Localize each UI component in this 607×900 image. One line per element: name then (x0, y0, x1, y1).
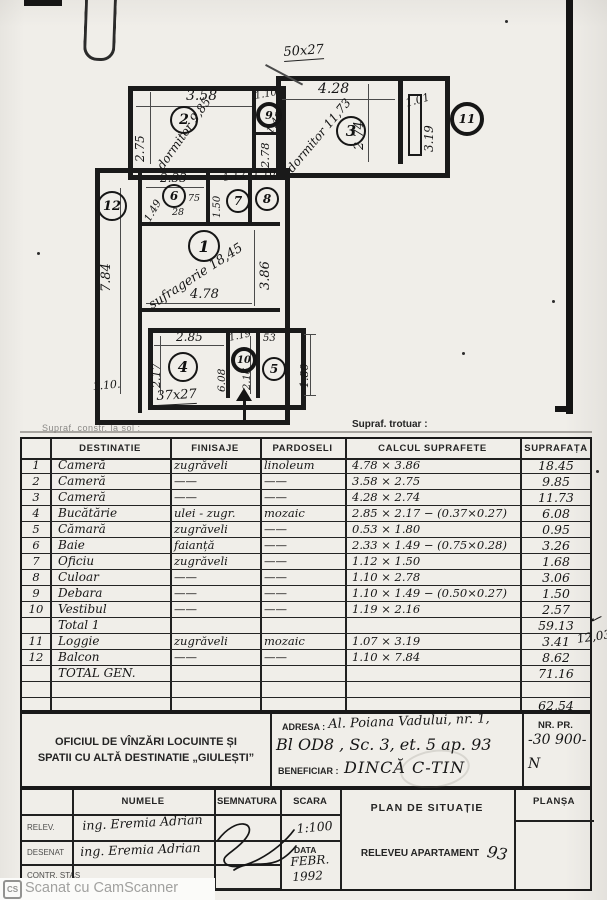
table-cell-nr: 10 (22, 602, 50, 617)
table-cell-dest: Total 1 (58, 618, 100, 633)
table-cell-sup: 71.16 (520, 666, 592, 681)
table-cell-sup: 0.95 (520, 522, 592, 537)
table-cell-dest: Baie (58, 538, 85, 553)
office-name: OFICIUL DE VÎNZĂRI LOCUINTE ȘI SPATII CU… (30, 734, 262, 766)
table-cell-dest: TOTAL GEN. (58, 666, 136, 681)
table-cell-fin: zugrăveli (174, 522, 228, 537)
header-semnatura: SEMNATURA (214, 796, 280, 807)
camara-number: 5 (262, 357, 286, 381)
table-cell-pard: —— (264, 490, 287, 505)
table-cell-dest: Cameră (58, 458, 106, 473)
table-rows: 1Camerăzugrăvelilinoleum4.78 × 3.8618.45… (22, 458, 590, 714)
table-cell-fin: —— (174, 474, 197, 489)
table-cell-pard: —— (264, 522, 287, 537)
dim-line (254, 230, 255, 306)
title-plan-de-situatie: PLAN DE SITUAȚIE (340, 802, 514, 814)
faint-rule (20, 431, 592, 433)
table-cell-sup: 6.08 (520, 506, 592, 521)
table-cell-calc: 3.58 × 2.75 (352, 474, 420, 489)
balcon-length-label: 7.84 (99, 263, 114, 292)
table-cell-sup: 18.45 (520, 458, 592, 473)
table-cell-dest: Loggie (58, 634, 100, 649)
table-cell-dest: Debara (58, 586, 102, 601)
artifact-speck (596, 470, 599, 473)
adresa-value-2: Bl OD8 , Sc. 3, et. 5 ap. 93 (276, 735, 491, 754)
table-cell-fin: —— (174, 586, 197, 601)
titleblock-grid-line (514, 820, 594, 822)
watermark-text: Scanat cu CamScanner (25, 880, 178, 896)
table-cell-dest: Oficiu (58, 554, 94, 569)
table-cell-fin: —— (174, 650, 197, 665)
culoar-number: 8 (255, 187, 279, 211)
table-row: TOTAL GEN.71.16 (22, 666, 590, 682)
table-row: Total 159.13 (22, 618, 590, 634)
office-grid-line (270, 714, 272, 786)
table-cell-sup: 1.68 (520, 554, 592, 569)
camara-depth-label: 1.80 (298, 364, 311, 389)
nr-pr-label: NR. PR. (538, 720, 573, 731)
table-cell-nr: 12 (22, 650, 50, 665)
table-row: 2Cameră————3.58 × 2.759.85 (22, 474, 590, 490)
adresa-label: ADRESA : (282, 722, 325, 732)
oficiu-depth-label: 1.50 (212, 196, 223, 218)
signature (200, 810, 306, 888)
table-row: 11Loggiezugrăvelimozaic1.07 × 3.193.41 (22, 634, 590, 650)
table-cell-fin: faianță (174, 538, 215, 553)
room1-width-label: 4.78 (190, 287, 219, 302)
table-cell-nr: 3 (22, 490, 50, 505)
area-table: DESTINATIE FINISAJE PARDOSELI CALCUL SUP… (20, 437, 592, 712)
table-cell-pard: —— (264, 570, 287, 585)
table-row: 9Debara————1.10 × 1.49 − (0.50×0.27)1.50 (22, 586, 590, 602)
wall-balcony-divider (138, 170, 142, 413)
table-cell-dest: Cămară (58, 522, 106, 537)
table-cell-sup: 8.62 (520, 650, 592, 665)
row2-name: ing. Eremia Adrian (80, 840, 201, 859)
vestibul-depth-label: 2.16 (242, 368, 253, 390)
wall-band-bottom (140, 222, 280, 226)
balcon-number: 12 (97, 191, 127, 221)
header-numele: NUMELE (72, 796, 214, 807)
table-cell-sup: 1.50 (520, 586, 592, 601)
table-cell-calc: 4.28 × 2.74 (352, 490, 420, 505)
opening-bottom-label: 37x27 (156, 387, 197, 406)
table-cell-pard: —— (264, 554, 287, 569)
table-cell-calc: 1.19 × 2.16 (352, 602, 420, 617)
table-cell-sup: 9.85 (520, 474, 592, 489)
table-cell-nr: 4 (22, 506, 50, 521)
dim-line (304, 334, 316, 335)
baie-sub-height-label: 28 (172, 207, 184, 218)
table-cell-calc: 2.85 × 2.17 − (0.37×0.27) (352, 506, 507, 521)
balcon-width-label: 1.10. (92, 378, 121, 393)
table-cell-pard: mozaic (264, 506, 305, 521)
wall-loggia (398, 80, 403, 164)
wall-room1-bottom (140, 308, 280, 312)
row-label-desenat: DESENAT (27, 848, 64, 857)
table-cell-pard: —— (264, 538, 287, 553)
table-cell-dest: Culoar (58, 570, 99, 585)
table-row: 1Camerăzugrăvelilinoleum4.78 × 3.8618.45 (22, 458, 590, 474)
table-cell-sup: 62,54 (520, 698, 592, 713)
table-cell-nr: 7 (22, 554, 50, 569)
adresa-value-1: Al. Poiana Vadului, nr. 1, (328, 711, 490, 732)
table-cell-fin: —— (174, 570, 197, 585)
table-cell-nr: 5 (22, 522, 50, 537)
kitchen-depth-label: 2.17 (150, 364, 163, 389)
table-cell-pard: —— (264, 586, 287, 601)
table-cell-nr: 6 (22, 538, 50, 553)
table-cell-sup: 3.26 (520, 538, 592, 553)
table-row: 5Cămarăzugrăveli——0.53 × 1.800.95 (22, 522, 590, 538)
table-cell-fin: zugrăveli (174, 458, 228, 473)
nr-pr-value: -30 900- (528, 732, 586, 748)
header-pardoseli: PARDOSELI (260, 439, 345, 458)
dim-line (150, 92, 151, 164)
wall-kitchen-divider-2 (256, 330, 260, 398)
table-cell-dest: Cameră (58, 474, 106, 489)
wall-band-divider-1 (206, 170, 210, 224)
dim-line (368, 84, 369, 162)
baie-sub-width-label: 75 (188, 193, 200, 204)
table-row: 10Vestibul————1.19 × 2.162.57 (22, 602, 590, 618)
caption-supraf-trotuar: Supraf. trotuar : (352, 419, 428, 430)
data-value-month: FEBR. (290, 852, 330, 869)
loggia-number: 11 (450, 102, 484, 136)
scanned-document-page: 50x27 3.58 2.75 2 dormitor 9,85 1.10 9 1… (0, 0, 607, 900)
header-plansa: PLANȘA (514, 796, 594, 807)
dim-line (120, 188, 121, 394)
baie-width-label: 2.33 (160, 171, 187, 185)
table-row: 12Balcon————1.10 × 7.848.62 (22, 650, 590, 666)
table-cell-pard: —— (264, 602, 287, 617)
table-cell-calc: 1.12 × 1.50 (352, 554, 420, 569)
oficiu-number: 7 (226, 189, 250, 213)
room2-depth-label: 2.75 (133, 135, 147, 162)
table-cell-pard: mozaic (264, 634, 305, 649)
table-cell-calc: 1.07 × 3.19 (352, 634, 420, 649)
data-value-year: 1992 (292, 868, 323, 884)
table-cell-fin: —— (174, 490, 197, 505)
table-cell-nr: 1 (22, 458, 50, 473)
kitchen-note: 6.08 (216, 369, 228, 392)
office-grid-line (522, 714, 524, 786)
loggia-length-label: 3.19 (422, 125, 436, 152)
beneficiar-label: BENEFICIAR : (278, 766, 339, 776)
dim-line (154, 345, 224, 346)
room3-depth-label: 2.74 (352, 121, 367, 150)
table-cell-fin: —— (174, 602, 197, 617)
room1-depth-label: 3.86 (258, 261, 273, 290)
table-cell-calc: 2.33 × 1.49 − (0.75×0.28) (352, 538, 507, 553)
office-block: OFICIUL DE VÎNZĂRI LOCUINTE ȘI SPATII CU… (20, 712, 592, 788)
room3-width-label: 4.28 (318, 81, 349, 97)
table-cell-nr: 8 (22, 570, 50, 585)
header-finisaje: FINISAJE (170, 439, 260, 458)
table-cell-calc: 4.78 × 3.86 (352, 458, 420, 473)
table-row (22, 682, 590, 698)
table-cell-fin: ulei - zugr. (174, 506, 235, 521)
office-name-line2: SPATII CU ALTĂ DESTINATIE „GIULEȘTI” (30, 750, 262, 766)
table-cell-dest: Balcon (58, 650, 99, 665)
table-row: 3Cameră————4.28 × 2.7411.73 (22, 490, 590, 506)
table-cell-sup: 11.73 (520, 490, 592, 505)
table-cell-fin: zugrăveli (174, 634, 228, 649)
apartment-number: 93 (486, 842, 509, 864)
baie-number: 6 (162, 184, 186, 208)
floor-plan: 50x27 3.58 2.75 2 dormitor 9,85 1.10 9 1… (0, 0, 607, 430)
table-cell-fin: zugrăveli (174, 554, 228, 569)
table-row: 6Baiefaianță——2.33 × 1.49 − (0.75×0.28)3… (22, 538, 590, 554)
table-cell-calc: 1.10 × 2.78 (352, 570, 420, 585)
camara-width-label: 53 (263, 333, 276, 344)
table-cell-calc: 0.53 × 1.80 (352, 522, 420, 537)
entry-door-stem (243, 400, 246, 424)
table-row: 8Culoar————1.10 × 2.783.06 (22, 570, 590, 586)
table-cell-dest: Cameră (58, 490, 106, 505)
table-cell-calc: 1.10 × 7.84 (352, 650, 420, 665)
table-row: 4Bucătărieulei - zugr.mozaic2.85 × 2.17 … (22, 506, 590, 522)
table-cell-dest: Bucătărie (58, 506, 117, 521)
table-row: 7Oficiuzugrăveli——1.12 × 1.501.68 (22, 554, 590, 570)
table-cell-nr: 11 (22, 634, 50, 649)
scara-value: 1:100 (296, 818, 333, 836)
dim-line (304, 395, 316, 396)
table-cell-dest: Vestibul (58, 602, 107, 617)
table-cell-nr: 9 (22, 586, 50, 601)
row-label-relev: RELEV. (27, 823, 55, 832)
table-cell-pard: linoleum (264, 458, 314, 473)
table-cell-calc: 1.10 × 1.49 − (0.50×0.27) (352, 586, 507, 601)
office-name-line1: OFICIUL DE VÎNZĂRI LOCUINTE ȘI (30, 734, 262, 750)
culoar-length-label: 2.78 (258, 142, 272, 168)
header-destinatie: DESTINATIE (50, 439, 170, 458)
nr-pr-note: N (528, 756, 540, 772)
header-suprafata: SUPRAFAȚA (520, 439, 592, 458)
kitchen-number: 4 (168, 352, 198, 382)
camscanner-icon: CS (3, 880, 22, 899)
header-scara: SCARA (280, 796, 340, 807)
table-cell-pard: —— (264, 474, 287, 489)
opening-top-label: 50x27 (283, 42, 325, 62)
table-cell-sup: 2.57 (520, 602, 592, 617)
title-block: NUMELE SEMNATURA SCARA PLANȘA RELEV. DES… (20, 788, 592, 891)
table-cell-pard: —— (264, 650, 287, 665)
kitchen-width-label: 2.85 (176, 330, 203, 344)
table-cell-nr: 2 (22, 474, 50, 489)
table-cell-sup: 3.06 (520, 570, 592, 585)
title-releveu-apartament: RELEVEU APARTAMENT (340, 848, 500, 859)
header-calcul: CALCUL SUPRAFETE (345, 439, 520, 458)
